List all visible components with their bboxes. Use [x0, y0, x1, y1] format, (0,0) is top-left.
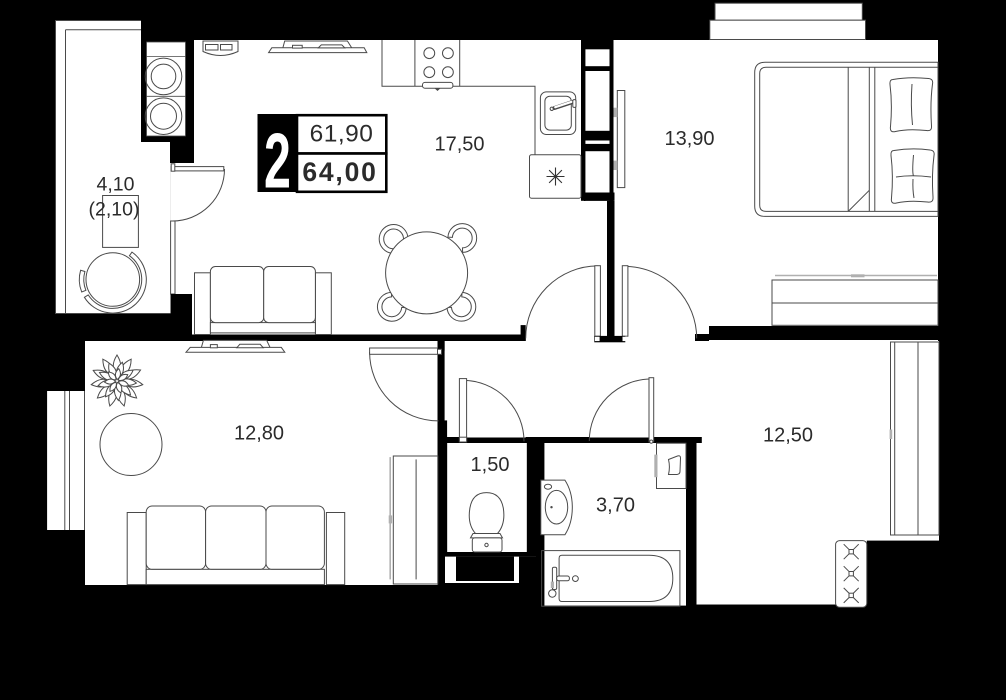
svg-text:61,90: 61,90	[310, 121, 374, 148]
svg-text:12,50: 12,50	[763, 425, 813, 447]
svg-text:2: 2	[264, 117, 291, 205]
svg-text:(2,10): (2,10)	[89, 199, 140, 221]
svg-text:17,50: 17,50	[434, 134, 484, 156]
svg-text:4,10: 4,10	[97, 174, 135, 196]
svg-text:3,70: 3,70	[596, 495, 635, 517]
svg-text:13,90: 13,90	[664, 128, 714, 150]
svg-text:64,00: 64,00	[302, 157, 377, 187]
svg-text:1,50: 1,50	[471, 454, 510, 476]
svg-text:12,80: 12,80	[234, 423, 284, 445]
